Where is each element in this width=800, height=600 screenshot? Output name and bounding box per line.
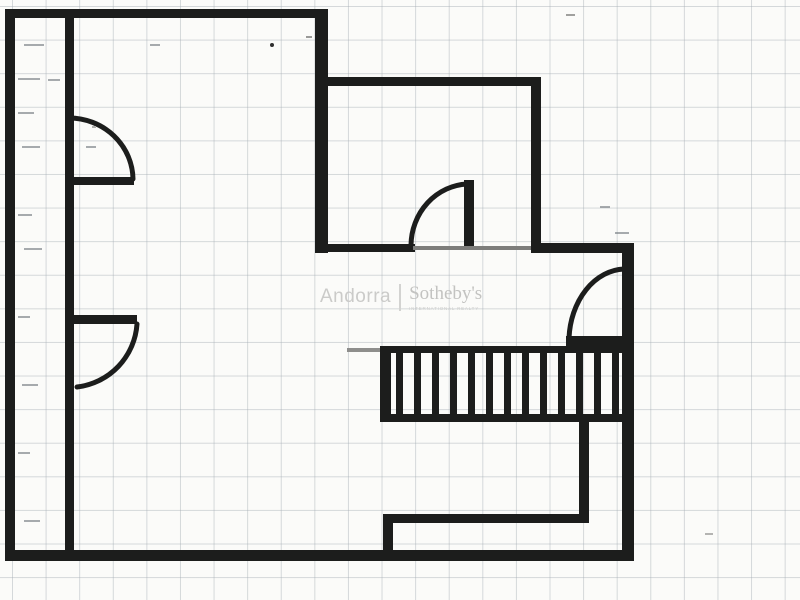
wall-upper-room-top <box>322 77 541 86</box>
staircase-tread <box>522 352 529 415</box>
wall-mid-horizontal-left <box>315 244 415 252</box>
wall-corridor <box>65 18 74 556</box>
staircase-bottom-edge <box>380 414 630 422</box>
staircase-tread <box>432 352 439 415</box>
wall-lower-inner-horizontal <box>383 514 589 523</box>
wall-mid-horizontal-faint <box>413 246 534 250</box>
staircase <box>347 346 630 422</box>
staircase-tread <box>414 352 421 415</box>
wall-mid-vertical-upper <box>315 9 328 253</box>
staircase-tread <box>504 352 511 415</box>
wall-upper-room-right <box>531 77 541 252</box>
staircase-tread <box>486 352 493 415</box>
door-3-leaf <box>464 180 474 246</box>
staircase-tread <box>468 352 475 415</box>
watermark-divider <box>399 284 401 311</box>
watermark-brand-block: Sotheby's INTERNATIONAL REALTY <box>409 283 482 311</box>
wall-lower-inner-stub <box>383 514 393 556</box>
staircase-tread <box>558 352 565 415</box>
staircase-tread <box>396 352 403 415</box>
door-1-leaf <box>65 177 134 185</box>
staircase-tread <box>450 352 457 415</box>
staircase-top-edge <box>380 346 630 353</box>
sothebys-watermark: Andorra Sotheby's INTERNATIONAL REALTY <box>320 283 482 311</box>
staircase-tread <box>540 352 547 415</box>
wall-outer-top <box>5 9 328 18</box>
wall-outer-bottom <box>5 550 634 561</box>
door-4-leaf <box>566 336 625 346</box>
watermark-brand-andorra: Andorra <box>320 283 391 310</box>
staircase-tread <box>594 352 601 415</box>
wall-outer-left <box>5 9 15 561</box>
staircase-tread <box>576 352 583 415</box>
door-1-swing-arc <box>69 118 133 179</box>
staircase-treads <box>396 352 619 415</box>
door-4-swing-arc <box>569 269 624 338</box>
wall-mid-horizontal-right <box>531 243 629 253</box>
staircase-left-edge <box>380 346 391 422</box>
watermark-brand-sothebys: Sotheby's <box>409 283 482 304</box>
staircase-tread <box>612 352 619 415</box>
wall-outer-right <box>622 243 634 561</box>
watermark-tagline: INTERNATIONAL REALTY <box>409 306 482 311</box>
door-2-leaf <box>65 315 137 324</box>
staircase-lead-line <box>347 348 383 352</box>
scanned-floorplan-page: Andorra Sotheby's INTERNATIONAL REALTY <box>0 0 800 600</box>
wall-lower-inner-vertical <box>579 418 589 523</box>
door-2-swing-arc <box>77 324 137 387</box>
door-3-swing-arc <box>411 184 467 245</box>
